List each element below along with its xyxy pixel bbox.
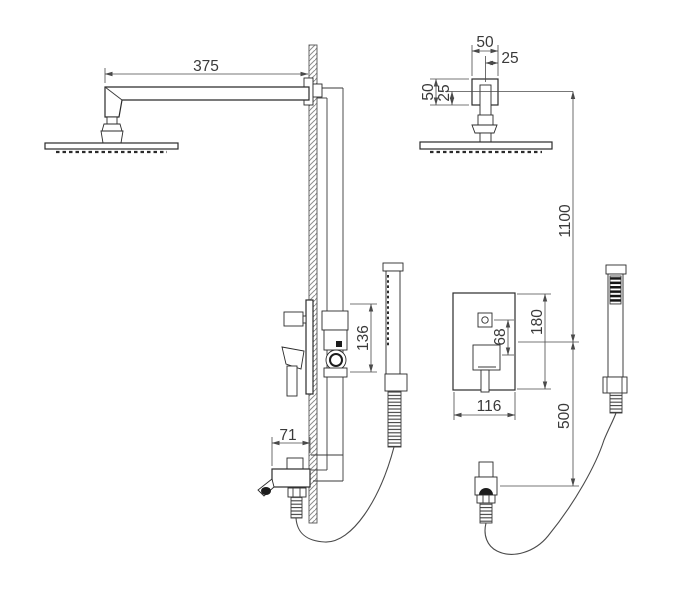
dim-label-arm-length: 375 xyxy=(193,58,219,75)
hand-shower-side xyxy=(383,263,407,447)
shower-hose-front xyxy=(485,413,616,554)
dim-label-plate-height: 180 xyxy=(529,309,546,335)
dim-label-button-to-handle: 68 xyxy=(492,328,509,345)
dim-plate-width: 116 xyxy=(454,392,515,420)
arm-wall-mount-front xyxy=(445,56,573,142)
dim-label-spout-projection: 71 xyxy=(279,427,296,444)
dim-label-mount-height-half: 25 xyxy=(436,84,453,101)
dim-label-valve-to-outlet: 500 xyxy=(556,403,573,429)
hand-shower-front xyxy=(603,265,627,413)
wall-outlet xyxy=(475,462,497,523)
front-view: 50 25 50 25 1100 500 xyxy=(420,34,627,554)
dim-label-head-to-valve: 1100 xyxy=(557,204,574,238)
drawing-svg: 375 136 xyxy=(0,0,675,600)
dim-valve-to-outlet: 500 xyxy=(556,342,573,486)
diverter-button-side xyxy=(284,312,306,326)
rain-shower-head-front xyxy=(420,142,552,152)
rain-shower-head-side xyxy=(45,143,178,152)
dim-mount-width: 50 xyxy=(472,34,498,76)
dim-head-to-valve: 1100 xyxy=(557,92,574,343)
hand-shower-spray-bars xyxy=(610,276,621,304)
diverter-button-front xyxy=(478,313,492,327)
dim-label-mount-width: 50 xyxy=(476,34,494,51)
dim-label-mount-height: 50 xyxy=(420,83,437,101)
dim-label-valve-trim-height: 136 xyxy=(355,325,372,351)
dim-label-plate-width: 116 xyxy=(477,398,502,415)
tub-spout xyxy=(258,458,310,518)
shower-system-dimension-drawing: 375 136 xyxy=(0,0,675,600)
dim-plate-height: 180 xyxy=(517,294,551,389)
side-view: 375 136 xyxy=(45,45,407,542)
dim-mount-width-half: 25 xyxy=(486,50,519,67)
dim-mount-height-half: 25 xyxy=(436,84,453,105)
dim-valve-trim-height: 136 xyxy=(350,304,377,372)
dim-label-mount-width-half: 25 xyxy=(501,50,518,67)
shower-arm xyxy=(101,87,309,143)
mixer-handle-side xyxy=(282,347,304,396)
dim-arm-length: 375 xyxy=(105,58,308,83)
